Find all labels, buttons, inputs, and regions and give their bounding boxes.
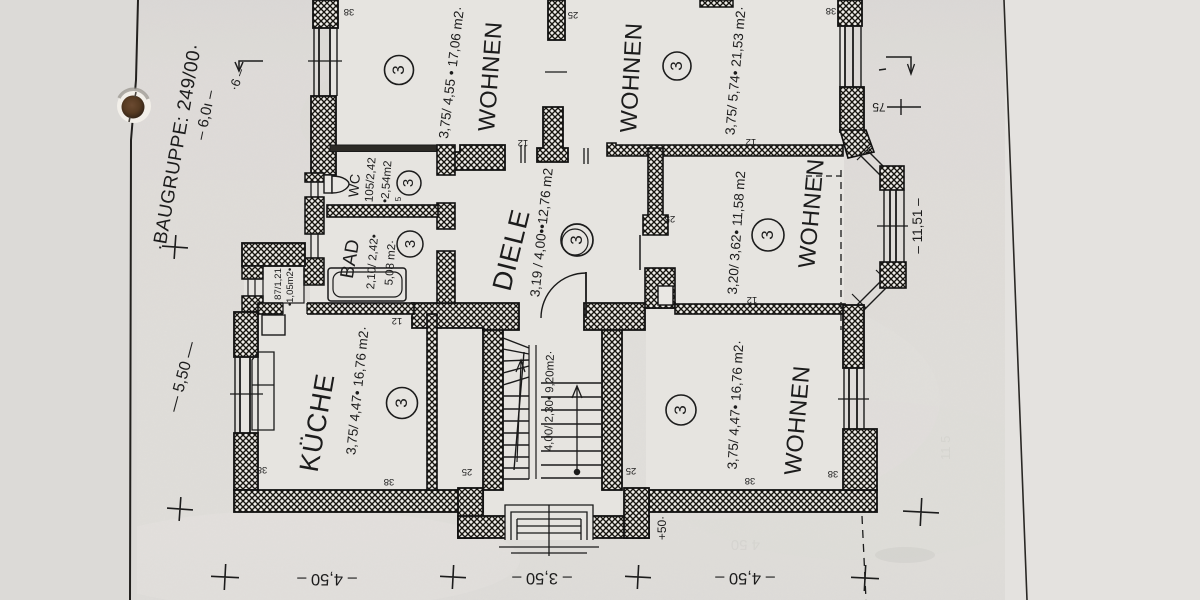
svg-text:3: 3 <box>671 405 690 414</box>
svg-text:– 3,50 –: – 3,50 – <box>511 569 571 587</box>
svg-text:11 5: 11 5 <box>938 436 953 460</box>
svg-text:– 4,50 –: – 4,50 – <box>714 569 774 587</box>
svg-text:38: 38 <box>828 468 839 479</box>
svg-text:87/1,21: 87/1,21 <box>273 268 284 300</box>
svg-text:12: 12 <box>392 315 403 326</box>
svg-text:38: 38 <box>344 6 355 17</box>
svg-text:25: 25 <box>462 466 473 477</box>
svg-text:WC: WC <box>345 173 363 198</box>
svg-text:38: 38 <box>384 476 395 487</box>
svg-text:38: 38 <box>745 475 756 486</box>
svg-text:– 4,50 –: – 4,50 – <box>296 570 356 588</box>
svg-text:5: 5 <box>394 196 403 201</box>
svg-text:12: 12 <box>746 136 757 147</box>
svg-text:75: 75 <box>872 100 886 114</box>
svg-text:38: 38 <box>826 5 837 16</box>
svg-text:12: 12 <box>518 137 529 148</box>
svg-text:25: 25 <box>568 9 579 20</box>
svg-text:– 11,51 –: – 11,51 – <box>910 198 925 254</box>
svg-text:4,00/ 2,30• 9,20m2·: 4,00/ 2,30• 9,20m2· <box>543 351 557 452</box>
svg-text:25: 25 <box>626 465 637 476</box>
svg-text:12: 12 <box>747 294 758 305</box>
svg-text:3: 3 <box>402 240 419 248</box>
svg-text:3: 3 <box>758 230 777 239</box>
svg-text:25: 25 <box>665 213 676 224</box>
svg-text:+50·: +50· <box>655 516 669 540</box>
svg-text:3: 3 <box>567 235 586 244</box>
svg-text:38: 38 <box>257 464 268 475</box>
svg-text:3: 3 <box>400 179 417 187</box>
svg-text:3: 3 <box>392 398 411 407</box>
svg-text:4 50: 4 50 <box>731 536 760 553</box>
svg-text:3: 3 <box>389 65 408 74</box>
svg-text:3: 3 <box>667 61 686 70</box>
svg-text:•1,05m2•: •1,05m2• <box>285 268 296 306</box>
